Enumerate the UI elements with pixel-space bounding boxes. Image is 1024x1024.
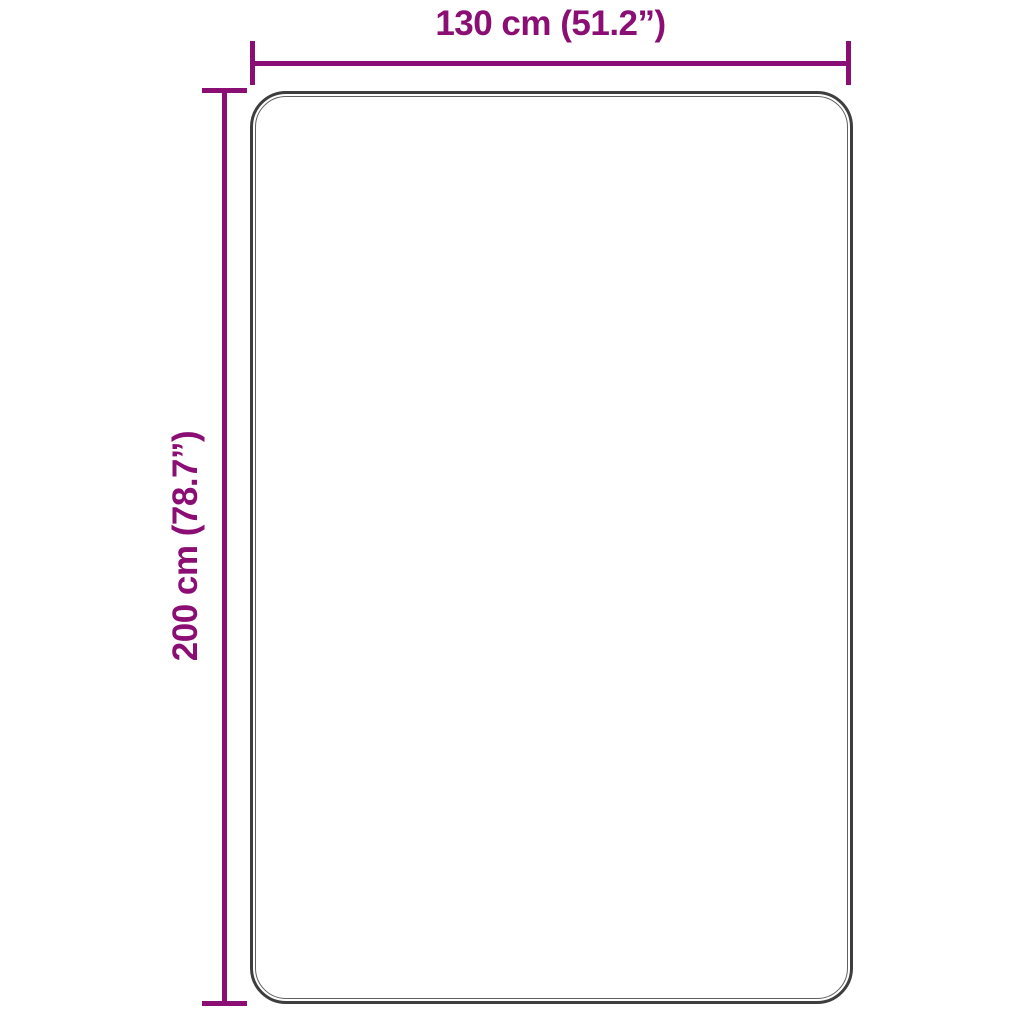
width-dimension-tick-right xyxy=(846,41,851,85)
width-dimension-label: 130 cm (51.2”) xyxy=(250,4,851,44)
height-dimension-line xyxy=(222,88,227,1006)
dimension-diagram: 130 cm (51.2”) 200 cm (78.7”) xyxy=(0,0,1024,1024)
height-dimension-tick-bottom xyxy=(202,1001,247,1006)
width-dimension xyxy=(250,41,851,85)
product-outline xyxy=(250,91,853,1004)
product-outline-inner-line xyxy=(255,96,848,999)
width-dimension-line xyxy=(250,61,851,66)
height-dimension-label: 200 cm (78.7”) xyxy=(166,431,206,661)
height-dimension xyxy=(202,88,247,1006)
